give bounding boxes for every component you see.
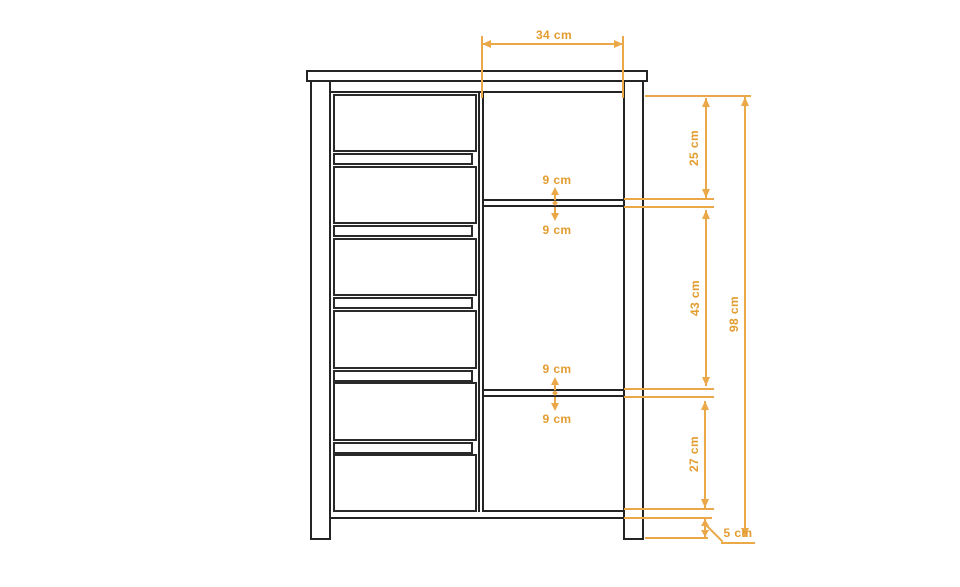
drawer-gap	[333, 370, 473, 382]
cabinet-bottom-panel-line	[331, 517, 623, 519]
arrowhead-down-icon	[701, 499, 709, 508]
dimension-line-middle-section	[705, 210, 707, 386]
arrowhead-down-icon	[551, 213, 559, 221]
extension-line	[624, 517, 712, 519]
drawer-gap	[333, 442, 473, 454]
dim-label-shelf1-below: 9 cm	[543, 224, 572, 236]
drawer-front-6	[333, 454, 477, 512]
extension-line	[645, 95, 751, 97]
dim-label-top-section: 25 cm	[688, 130, 700, 166]
dimension-line-bottom-section	[704, 401, 706, 508]
dim-label-bottom-section: 27 cm	[688, 436, 700, 472]
extension-line-floor	[645, 537, 708, 539]
drawer-front-4	[333, 310, 477, 369]
dim-label-shelf2-below: 9 cm	[543, 413, 572, 425]
drawer-front-1	[333, 94, 477, 152]
dim-label-total-height: 98 cm	[728, 296, 740, 332]
cabinet-top-panel	[306, 70, 648, 82]
furniture-dimension-diagram: 34 cm 25 cm 43 cm 27 cm 98 cm 5 cm 9 cm …	[0, 0, 960, 587]
dim-label-opening-width: 34 cm	[536, 29, 572, 41]
arrowhead-up-icon	[702, 210, 710, 219]
cabinet-left-side-panel	[310, 80, 331, 540]
arrowhead-up-icon	[702, 98, 710, 107]
arrowhead-down-icon	[551, 403, 559, 411]
dimension-line-opening-width	[482, 43, 623, 45]
dimension-line-top-section	[705, 98, 707, 198]
cabinet-top-rail-line	[331, 91, 623, 93]
arrowhead-down-icon	[701, 530, 709, 537]
cabinet-bottom-shelf-line	[484, 510, 623, 512]
cabinet-center-divider	[478, 91, 484, 512]
extension-line	[624, 508, 714, 510]
arrowhead-up-icon	[701, 401, 709, 410]
arrowhead-left-icon	[482, 40, 491, 48]
drawer-gap	[333, 297, 473, 309]
arrowhead-down-icon	[702, 189, 710, 198]
dim-label-shelf2-above: 9 cm	[543, 363, 572, 375]
drawer-front-2	[333, 166, 477, 224]
cabinet-right-side-panel	[623, 80, 644, 540]
drawer-front-3	[333, 238, 477, 296]
drawer-front-5	[333, 382, 477, 441]
extension-line	[624, 206, 714, 208]
arrowhead-down-icon	[702, 377, 710, 386]
drawer-gap	[333, 225, 473, 237]
dim-label-plinth: 5 cm	[724, 527, 753, 539]
dim-label-shelf1-above: 9 cm	[543, 174, 572, 186]
dimension-line-total-height	[744, 97, 746, 537]
extension-line	[624, 198, 714, 200]
dim-label-middle-section: 43 cm	[689, 280, 701, 316]
leader-underline	[721, 542, 755, 544]
drawer-gap	[333, 153, 473, 165]
extension-line	[624, 396, 714, 398]
arrowhead-up-icon	[741, 97, 749, 106]
arrowhead-right-icon	[614, 40, 623, 48]
extension-line	[624, 388, 714, 390]
